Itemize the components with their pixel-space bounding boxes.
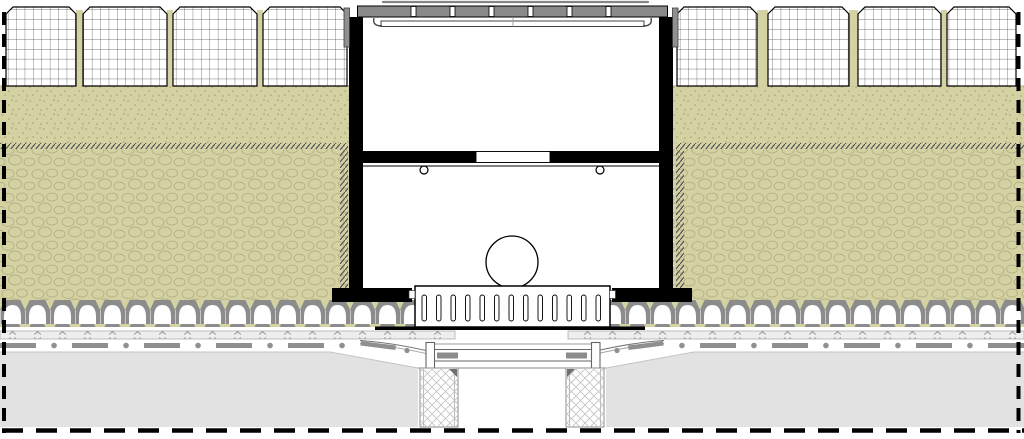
paver-block bbox=[173, 7, 257, 86]
base-slot bbox=[553, 295, 558, 321]
grate-slot bbox=[450, 7, 455, 17]
base-slot bbox=[524, 295, 529, 321]
membrane-layer bbox=[0, 331, 1024, 339]
base-slot bbox=[538, 295, 543, 321]
duct-block-left bbox=[437, 353, 458, 359]
base-slot bbox=[480, 295, 485, 321]
lattice-column-right bbox=[566, 368, 604, 427]
divider-handle bbox=[596, 166, 604, 174]
geotextile-right-icon bbox=[684, 143, 1024, 149]
duct-block-right bbox=[566, 353, 587, 359]
base-slot bbox=[596, 295, 601, 321]
edge-rail-right bbox=[673, 8, 679, 47]
grate-slot bbox=[489, 7, 494, 17]
grate-slot bbox=[528, 7, 533, 17]
support-post-left bbox=[426, 343, 435, 369]
base-slot bbox=[495, 295, 500, 321]
edge-rail-left bbox=[344, 8, 350, 47]
grate bbox=[358, 6, 668, 17]
base-slot bbox=[567, 295, 572, 321]
drawing-canvas bbox=[0, 0, 1024, 439]
support-post-right bbox=[592, 343, 601, 369]
paver-block bbox=[947, 7, 1016, 86]
base-slot bbox=[582, 295, 587, 321]
paver-block bbox=[677, 7, 757, 86]
base-slot bbox=[437, 295, 442, 321]
paver-block bbox=[768, 7, 849, 86]
paver-block bbox=[858, 7, 941, 86]
paver-block bbox=[6, 7, 76, 86]
outlet-pipe bbox=[486, 236, 538, 288]
geotextile-trench-right-icon bbox=[676, 143, 684, 302]
base-slot bbox=[422, 295, 427, 321]
divider-access-opening bbox=[476, 152, 550, 163]
channel-foot-right bbox=[612, 288, 692, 302]
base-notch-right bbox=[610, 291, 616, 299]
base-notch-left bbox=[409, 291, 415, 299]
paver-block bbox=[263, 7, 347, 86]
grate-slot bbox=[606, 7, 611, 17]
base-slot bbox=[451, 295, 456, 321]
paver-block bbox=[83, 7, 167, 86]
sloped-dot-left bbox=[404, 348, 409, 353]
channel-wall-right bbox=[659, 17, 673, 288]
base-support-line bbox=[375, 327, 645, 331]
geotextile-left-icon bbox=[0, 143, 340, 149]
lattice-column-left bbox=[420, 368, 458, 427]
geotextile-trench-left-icon bbox=[340, 143, 348, 302]
channel-foot-left bbox=[332, 288, 412, 302]
channel-wall-left bbox=[349, 17, 363, 288]
divider-handle bbox=[420, 166, 428, 174]
base-slot bbox=[509, 295, 514, 321]
sloped-dot-right bbox=[614, 348, 619, 353]
concrete-slab bbox=[0, 352, 1024, 427]
cross-section-drawing bbox=[0, 0, 1024, 439]
base-slot bbox=[466, 295, 471, 321]
slotted-base-element bbox=[409, 286, 616, 327]
grate-slot bbox=[411, 7, 416, 17]
grate-slot bbox=[567, 7, 572, 17]
